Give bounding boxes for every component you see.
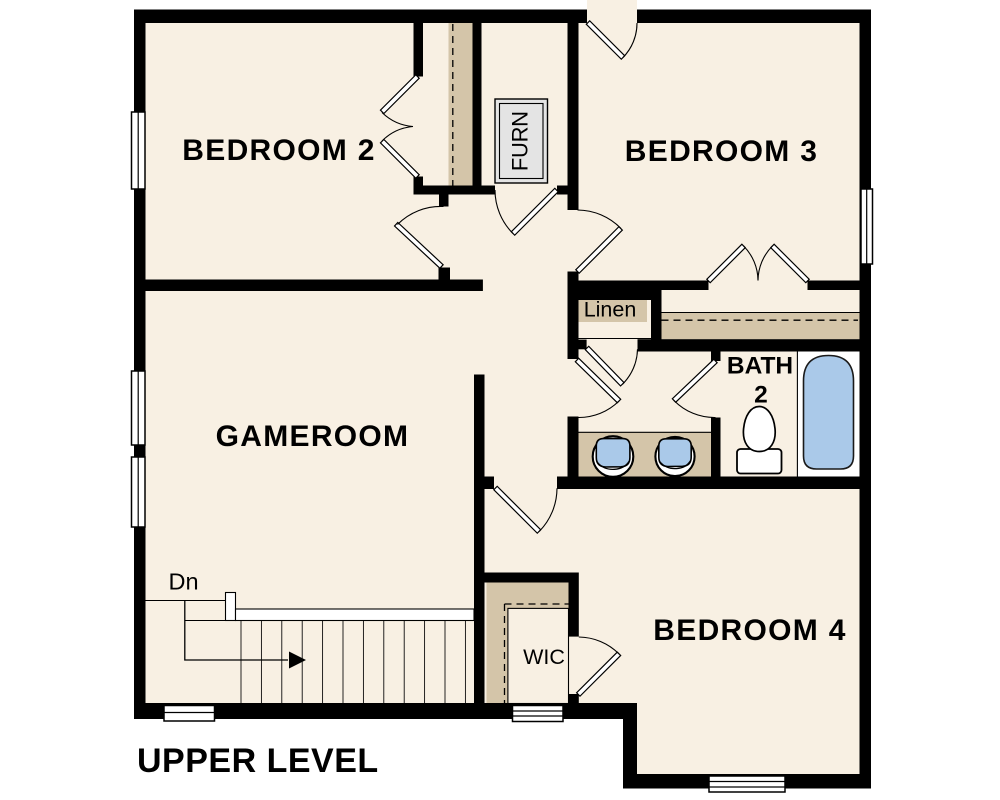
svg-text:UPPER LEVEL: UPPER LEVEL xyxy=(137,742,379,780)
svg-text:FURN: FURN xyxy=(508,111,533,171)
svg-text:2: 2 xyxy=(754,382,768,409)
svg-text:BATH: BATH xyxy=(727,353,793,380)
svg-text:Dn: Dn xyxy=(169,569,199,595)
svg-text:Linen: Linen xyxy=(584,298,637,322)
svg-text:BEDROOM 3: BEDROOM 3 xyxy=(625,135,818,168)
svg-text:BEDROOM 2: BEDROOM 2 xyxy=(182,134,375,167)
svg-text:WIC: WIC xyxy=(523,645,565,669)
svg-text:BEDROOM 4: BEDROOM 4 xyxy=(653,614,846,647)
svg-text:GAMEROOM: GAMEROOM xyxy=(216,420,410,453)
